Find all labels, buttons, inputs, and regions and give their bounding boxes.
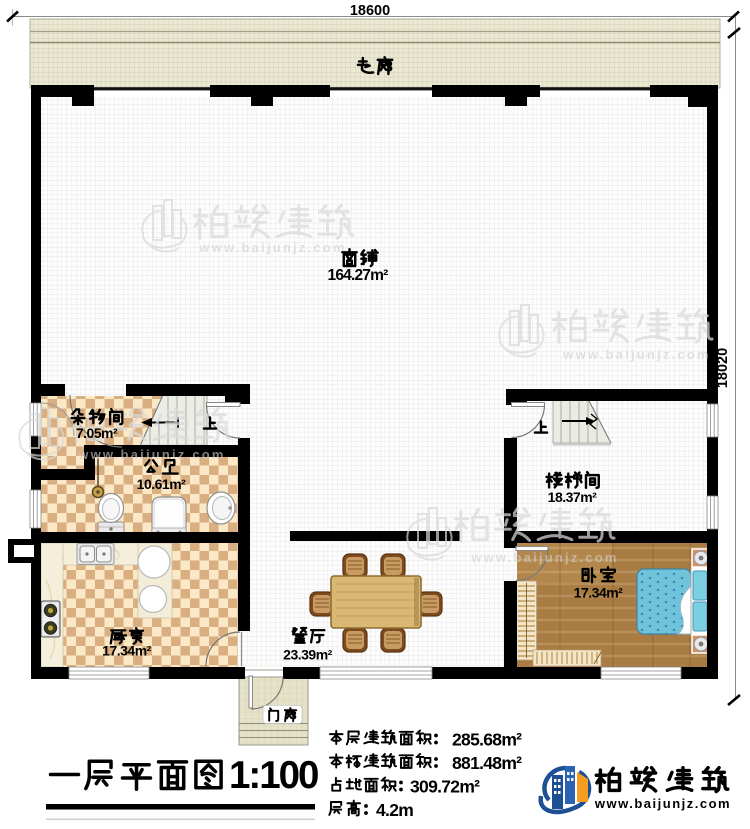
- svg-text:www.baijunjz.com: www.baijunjz.com: [594, 796, 731, 811]
- svg-text:881.48m²: 881.48m²: [452, 753, 522, 773]
- svg-text:17.34m²: 17.34m²: [102, 643, 151, 659]
- svg-text:17.34m²: 17.34m²: [574, 585, 623, 601]
- svg-text:164.27m²: 164.27m²: [328, 267, 389, 284]
- svg-text:1:100: 1:100: [229, 754, 318, 797]
- svg-text:www.baijunjz.com: www.baijunjz.com: [198, 240, 346, 255]
- svg-text:18600: 18600: [350, 3, 390, 19]
- svg-text:4.2m: 4.2m: [376, 800, 413, 820]
- svg-text:www.baijunjz.com: www.baijunjz.com: [77, 447, 225, 462]
- svg-text:7.05m²: 7.05m²: [76, 425, 118, 441]
- svg-text:18.37m²: 18.37m²: [548, 489, 597, 505]
- svg-text:285.68m²: 285.68m²: [452, 730, 522, 750]
- svg-text:23.39m²: 23.39m²: [283, 647, 332, 663]
- svg-text:www.baijunjz.com: www.baijunjz.com: [562, 347, 710, 362]
- svg-text:309.72m²: 309.72m²: [410, 777, 480, 797]
- svg-text:www.baijunjz.com: www.baijunjz.com: [470, 550, 618, 565]
- svg-text:10.61m²: 10.61m²: [137, 476, 186, 492]
